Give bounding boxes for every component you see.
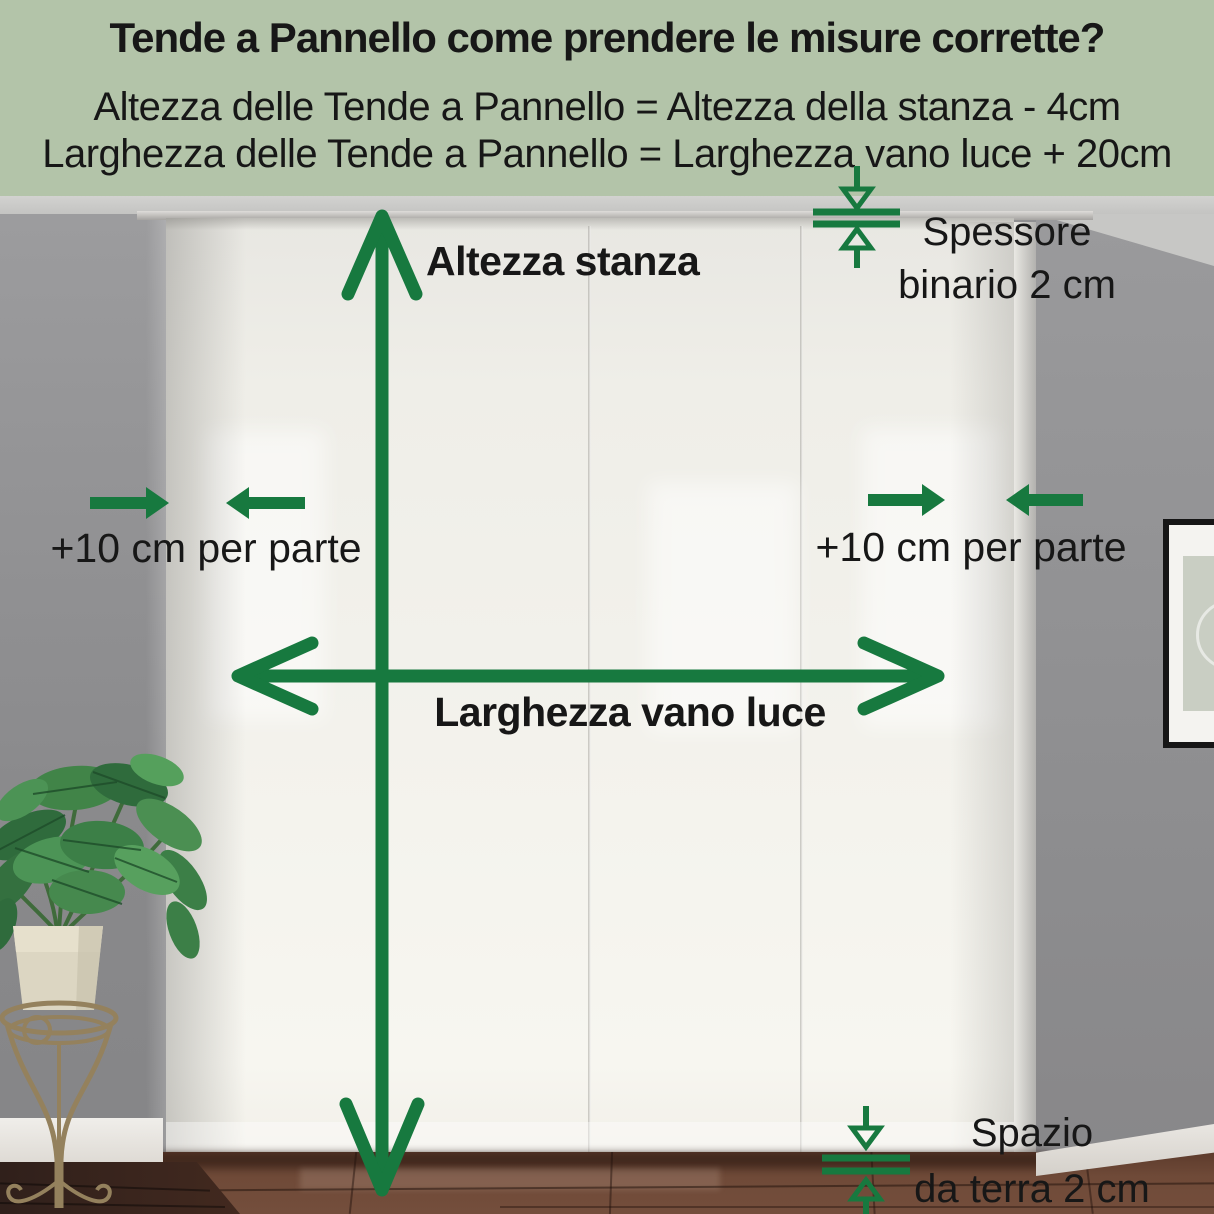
- label-floor-gap: Spazio da terra 2 cm: [914, 1105, 1150, 1214]
- label-side-margin-right: +10 cm per parte: [815, 524, 1126, 571]
- label-floor-gap-line1: Spazio: [914, 1105, 1150, 1161]
- label-floor-gap-line2: da terra 2 cm: [914, 1161, 1150, 1214]
- plant-pot: [13, 926, 103, 1010]
- label-rail-thickness: Spessore binario 2 cm: [898, 206, 1116, 312]
- label-room-height: Altezza stanza: [426, 238, 699, 285]
- label-opening-width: Larghezza vano luce: [434, 689, 826, 736]
- page-title: Tende a Pannello come prendere le misure…: [110, 14, 1105, 62]
- formula-width: Larghezza delle Tende a Pannello = Largh…: [42, 132, 1172, 177]
- label-rail-thickness-line1: Spessore: [898, 206, 1116, 259]
- infographic-root: Tende a Pannello come prendere le misure…: [0, 0, 1214, 1214]
- window-jamb: [1014, 222, 1036, 1160]
- formula-height: Altezza delle Tende a Pannello = Altezza…: [93, 85, 1120, 130]
- header-band: Tende a Pannello come prendere le misure…: [0, 0, 1214, 196]
- label-rail-thickness-line2: binario 2 cm: [898, 259, 1116, 312]
- curtain-right-shade: [950, 222, 1014, 1158]
- plant-stand: [2, 1003, 116, 1208]
- potted-plant: [0, 730, 210, 1214]
- label-side-margin-left: +10 cm per parte: [50, 525, 361, 572]
- curtain-hem: [166, 1122, 1014, 1152]
